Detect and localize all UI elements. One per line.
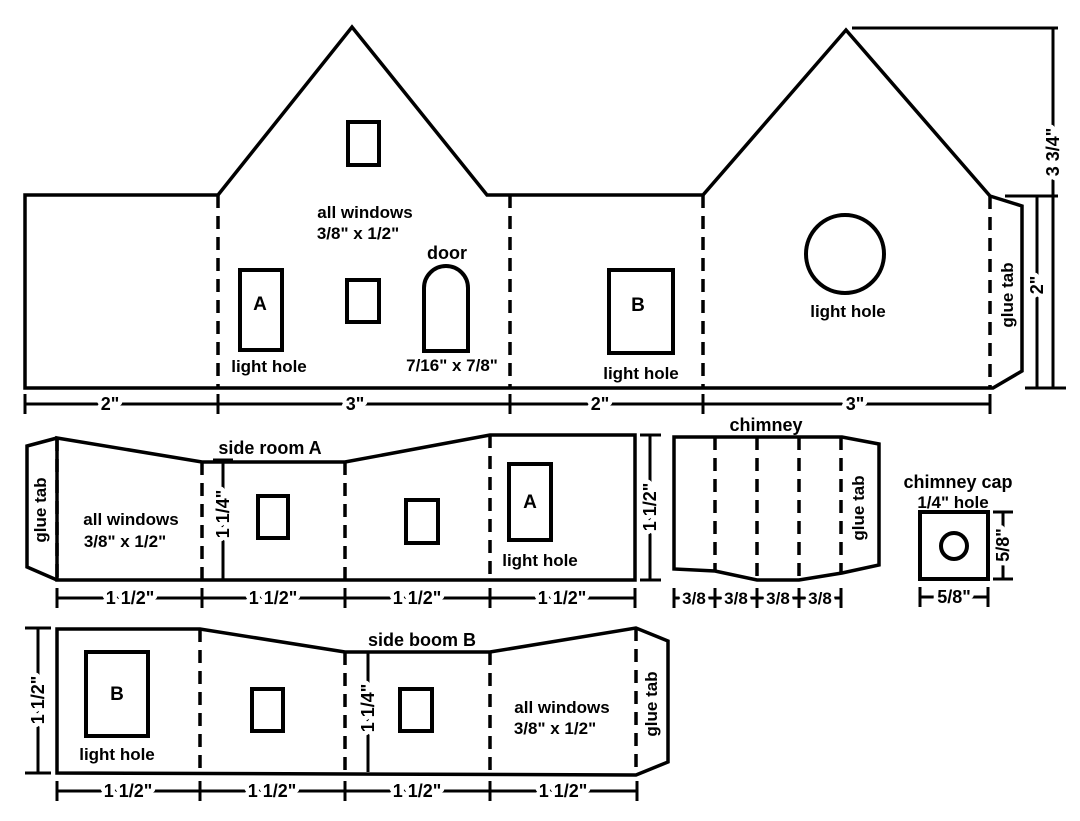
chimney-cap-hole-cutout bbox=[941, 533, 967, 559]
glue-tab-label: glue tab bbox=[31, 477, 50, 542]
chimney: chimney glue tab 3/8 3/8 3/8 3/8 bbox=[674, 415, 879, 608]
light-hole-a-letter: A bbox=[523, 492, 537, 513]
dim-label: 1 1/2" bbox=[539, 781, 588, 801]
dim-label: 5/8" bbox=[937, 587, 971, 607]
glue-tab-label: glue tab bbox=[998, 262, 1017, 327]
back-light-hole-label: light hole bbox=[810, 302, 886, 321]
light-hole-b-label: light hole bbox=[603, 364, 679, 383]
dim-label: 3" bbox=[346, 394, 365, 414]
door-cutout bbox=[424, 266, 468, 351]
light-hole-b-letter: B bbox=[110, 684, 124, 705]
height-label: 1 1/2" bbox=[640, 483, 660, 532]
back-light-hole-cutout bbox=[806, 215, 884, 293]
dim-label: 3/8 bbox=[724, 589, 748, 608]
chimney-cap-outline bbox=[920, 512, 988, 579]
main-strip-outline bbox=[25, 27, 1022, 388]
dim-label: 3" bbox=[846, 394, 865, 414]
light-hole-a-label: light hole bbox=[231, 357, 307, 376]
diagram-canvas: all windows 3/8" x 1/2" A light hole doo… bbox=[0, 0, 1080, 816]
dim-label: 2" bbox=[591, 394, 610, 414]
dim-label: 1 1/2" bbox=[104, 781, 153, 801]
dim-label: 2" bbox=[101, 394, 120, 414]
wall-height-label: 1 1/4" bbox=[213, 490, 233, 539]
chimney-cap: chimney cap 1/4" hole 5/8" 5/8" bbox=[903, 472, 1013, 607]
glue-tab-label: glue tab bbox=[849, 475, 868, 540]
door-label: door bbox=[427, 243, 467, 263]
dim-label: 5/8" bbox=[993, 528, 1013, 562]
dim-label: 1 1/2" bbox=[393, 588, 442, 608]
window-note-line2: 3/8" x 1/2" bbox=[84, 532, 166, 551]
side-room-a-width-dims: 1 1/2" 1 1/2" 1 1/2" 1 1/2" bbox=[57, 588, 635, 608]
window-note-line1: all windows bbox=[83, 510, 178, 529]
dim-label: 1 1/2" bbox=[393, 781, 442, 801]
chimney-cap-dims: 5/8" 5/8" bbox=[920, 512, 1013, 607]
window-cutout bbox=[400, 689, 432, 731]
main-strip-width-dims: 2" 3" 2" 3" bbox=[25, 394, 990, 414]
wall-height-label: 1 1/4" bbox=[358, 684, 378, 733]
chimney-cap-hole-note: 1/4" hole bbox=[917, 493, 988, 512]
total-height-label: 3 3/4" bbox=[1043, 128, 1063, 177]
window-cutout bbox=[406, 500, 438, 543]
side-room-a-title: side room A bbox=[218, 438, 321, 458]
dim-label: 1 1/2" bbox=[106, 588, 155, 608]
dim-label: 3/8 bbox=[682, 589, 706, 608]
dim-label: 1 1/2" bbox=[249, 588, 298, 608]
window-note-line2: 3/8" x 1/2" bbox=[514, 719, 596, 738]
light-hole-a-letter: A bbox=[253, 294, 267, 315]
window-note-line1: all windows bbox=[514, 698, 609, 717]
window-cutout bbox=[252, 689, 283, 731]
height-label: 1 1/2" bbox=[28, 676, 48, 725]
attic-window-cutout bbox=[348, 122, 379, 165]
main-strip: all windows 3/8" x 1/2" A light hole doo… bbox=[25, 27, 1066, 414]
side-room-b-height-dim: 1 1/2" bbox=[25, 628, 51, 773]
dim-label: 1 1/2" bbox=[538, 588, 587, 608]
house-template-diagram: all windows 3/8" x 1/2" A light hole doo… bbox=[0, 0, 1080, 816]
side-room-b-width-dims: 1 1/2" 1 1/2" 1 1/2" 1 1/2" bbox=[57, 781, 637, 801]
light-hole-b-label: light hole bbox=[79, 745, 155, 764]
chimney-title: chimney bbox=[729, 415, 802, 435]
side-room-a-strip: side room A glue tab all windows 3/8" x … bbox=[27, 435, 661, 608]
light-hole-a-label: light hole bbox=[502, 551, 578, 570]
door-size-label: 7/16" x 7/8" bbox=[406, 356, 498, 375]
main-strip-height-dims: 3 3/4" 2" bbox=[852, 28, 1066, 388]
chimney-width-dims: 3/8 3/8 3/8 3/8 bbox=[674, 588, 841, 608]
wall-height-label: 2" bbox=[1027, 276, 1047, 295]
window-cutout bbox=[258, 496, 288, 538]
window-note-line1: all windows bbox=[317, 203, 412, 222]
front-window-cutout bbox=[347, 280, 379, 322]
window-note-line2: 3/8" x 1/2" bbox=[317, 224, 399, 243]
dim-label: 1 1/2" bbox=[248, 781, 297, 801]
side-room-b-strip: side boom B B light hole 1 1/4" all wind… bbox=[25, 628, 668, 801]
glue-tab-label: glue tab bbox=[642, 671, 661, 736]
light-hole-b-letter: B bbox=[631, 295, 645, 316]
side-room-a-height-dim: 1 1/2" bbox=[640, 435, 661, 580]
chimney-cap-title: chimney cap bbox=[903, 472, 1012, 492]
dim-label: 3/8 bbox=[766, 589, 790, 608]
side-room-b-title: side boom B bbox=[368, 630, 476, 650]
dim-label: 3/8 bbox=[808, 589, 832, 608]
